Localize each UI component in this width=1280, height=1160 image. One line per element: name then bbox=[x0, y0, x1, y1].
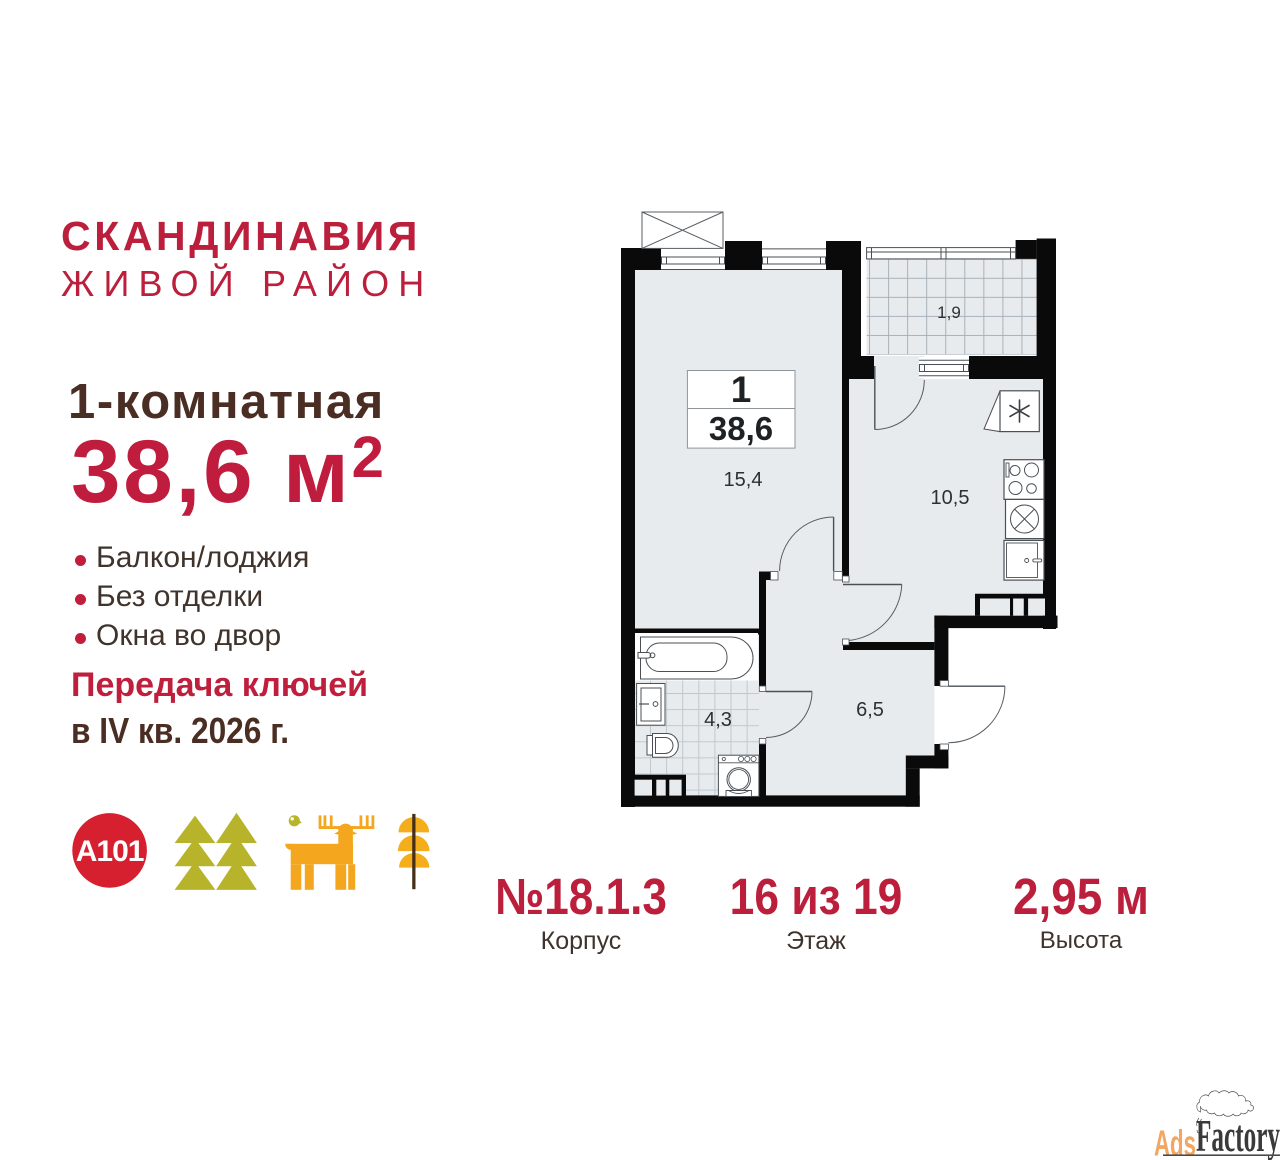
svg-text:A101: A101 bbox=[76, 835, 144, 868]
svg-text:Ads: Ads bbox=[1154, 1123, 1196, 1160]
svg-text:Factory: Factory bbox=[1196, 1111, 1280, 1160]
